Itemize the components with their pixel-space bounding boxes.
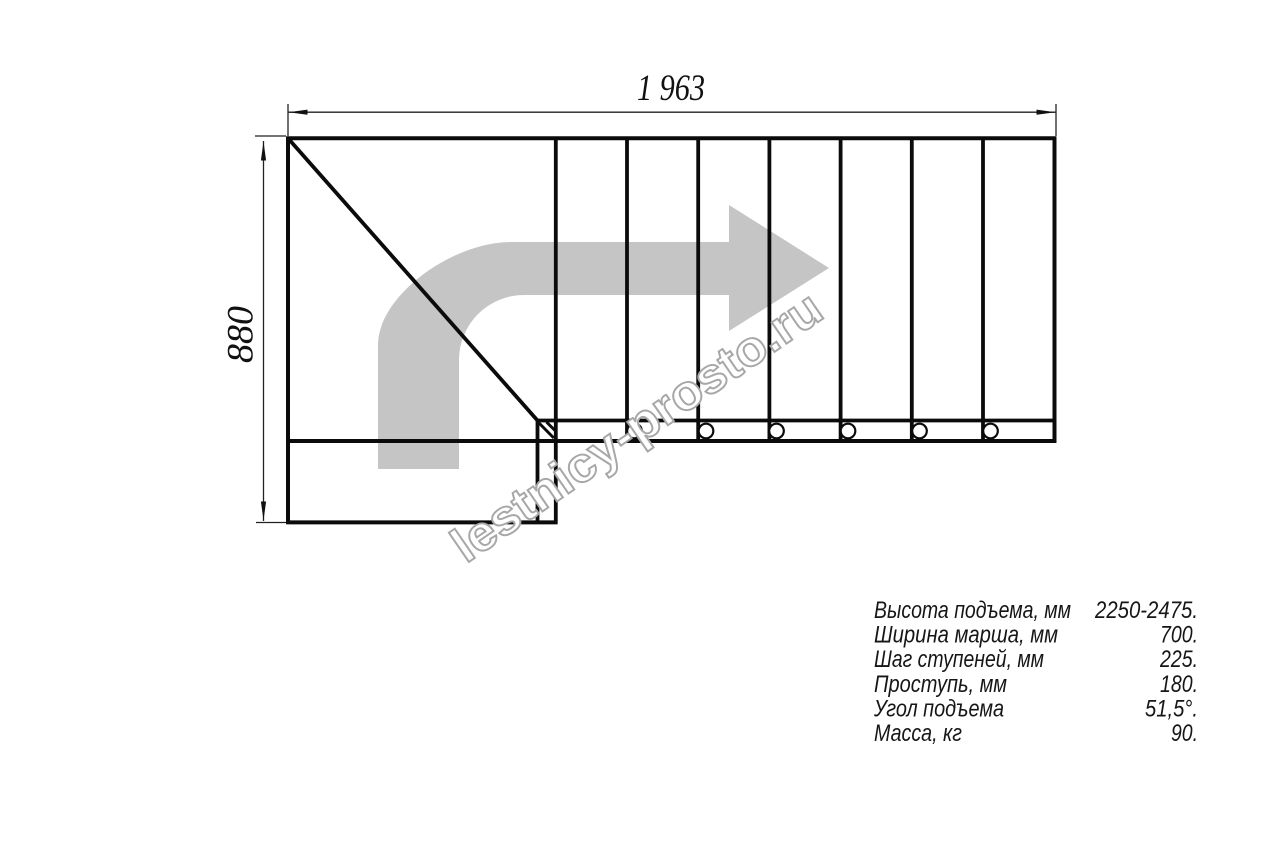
svg-text:1 963: 1 963 [637, 68, 705, 109]
svg-text:Проступь, мм: Проступь, мм [874, 671, 1007, 698]
svg-text:700.: 700. [1160, 622, 1198, 649]
svg-text:Ширина марша, мм: Ширина марша, мм [874, 622, 1058, 649]
svg-text:180.: 180. [1160, 671, 1198, 698]
svg-text:51,5°.: 51,5°. [1145, 695, 1198, 722]
svg-text:Шаг ступеней, мм: Шаг ступеней, мм [874, 646, 1044, 673]
svg-text:225.: 225. [1159, 646, 1198, 673]
svg-text:880: 880 [221, 305, 262, 363]
svg-text:Высота подъема, мм: Высота подъема, мм [874, 597, 1071, 624]
svg-text:Масса, кг: Масса, кг [874, 720, 962, 747]
svg-text:2250-2475.: 2250-2475. [1094, 597, 1198, 624]
svg-text:90.: 90. [1171, 720, 1198, 747]
svg-text:Угол подъема: Угол подъема [873, 695, 1004, 722]
